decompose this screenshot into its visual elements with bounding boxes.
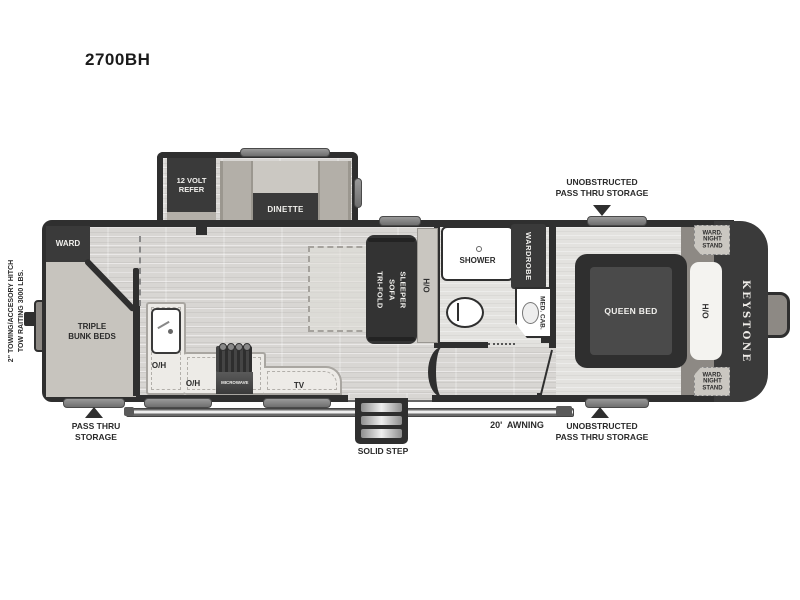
sofa-label: SLEEPER SOFA [386,264,409,315]
arrow-up-icon [85,407,103,418]
queen-bed: QUEEN BED [575,254,687,368]
bathroom-pocket-door [488,343,515,345]
dinette-seat-back [253,161,318,193]
unobstructed-storage-note-bottom: UNOBSTRUCTED PASS THRU STORAGE [538,421,666,442]
ward-night-stand-bottom: WARD. NIGHT STAND [694,367,730,396]
bunk-room-wall [133,306,140,396]
vanity-base-stub [541,336,551,343]
wardrobe: WARDROBE [511,224,546,289]
floorplan-model-title: 2700BH [85,50,150,70]
overhead-label-counter: O/H [176,379,210,389]
solid-step-note: SOLID STEP [340,446,426,457]
tri-fold-sleeper-sofa: SLEEPER SOFA TRI-FOLD [366,235,417,344]
bunk-beds-label: TRIPLE BUNK BEDS [48,322,136,342]
shower: SHOWER [441,226,514,281]
step-tread [361,416,402,425]
bunk-door-swing-line [139,236,141,306]
pass-thru-storage-note: PASS THRU STORAGE [56,421,136,442]
tow-hitch-note: 2" TOWING/ACCESORY HITCH TOW RAITING 300… [7,231,29,391]
keystone-brand-text: KEYSTONE [740,280,751,364]
burner-knob [235,343,243,351]
toilet-seat-line [457,303,459,321]
burner-knob [227,343,235,351]
unobstructed-storage-note-top: UNOBSTRUCTED PASS THRU STORAGE [538,177,666,198]
dinette-bench-right [318,161,351,226]
sofa-bed-foldout-outline [308,246,372,332]
range-cooktop [216,346,252,373]
slide-out-handle-top [240,148,330,157]
storage-door-bottom-2 [144,398,212,408]
bedroom-overhead-cabinet: O/H [690,262,722,360]
overhead-label-sink: O/H [142,361,176,371]
step-tread [361,403,402,412]
step-tread [361,429,402,438]
entry-door-panel [428,347,454,397]
dinette-bench-left [220,161,253,226]
ward-night-stand-top: WARD. NIGHT STAND [694,225,730,255]
queen-bed-mattress: QUEEN BED [590,267,672,355]
entry-steps [355,398,408,444]
slide-opening-wall-stub [196,222,207,235]
arrow-up-icon [591,407,609,418]
microwave: MICROWAVE [216,372,253,394]
shower-drain [476,246,482,252]
sink-faucet [168,329,173,334]
ward-closet: WARD [46,226,90,262]
arrow-down-icon [593,205,611,216]
sofa-overhead-cabinet: O/H [417,228,438,343]
refrigerator: 12 VOLT REFER [167,158,216,212]
toilet [446,297,484,328]
floorplan-canvas: 2700BH 2" TOWING/ACCESORY HITCH TOW RAIT… [0,0,800,600]
awning-bar [126,408,574,417]
kitchen-sink [151,308,181,354]
storage-door-bottom-3 [263,398,331,408]
burner-knob [219,343,227,351]
tv-label: TV [272,381,326,391]
bunk-room-door [133,268,139,308]
storage-door-top-2 [587,216,647,226]
burner-knob [243,343,251,351]
awning-end-cap-right [556,406,572,416]
awning-end-cap-left [124,407,134,416]
storage-door-top-1 [379,216,421,226]
bedroom-door-hinge [537,393,542,398]
sink-faucet-arm [157,321,169,329]
slide-out-handle-side [354,178,362,208]
